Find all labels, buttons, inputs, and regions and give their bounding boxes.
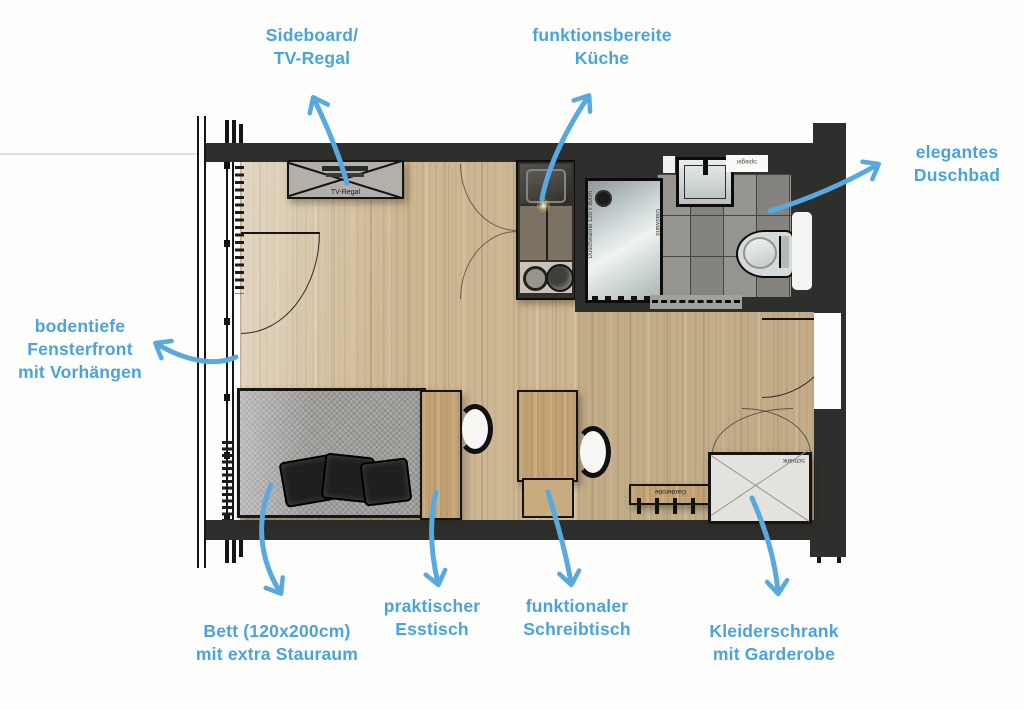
entrance-door-opening — [814, 313, 841, 409]
shower-tray-label: Duschwanne 120 x 80cm — [588, 191, 594, 258]
cooktop — [520, 262, 572, 293]
wall-section-tick — [225, 540, 229, 563]
wall-tick — [837, 557, 841, 563]
annotation-bathroom: elegantes Duschbad — [872, 141, 1024, 187]
kitchen-sink-zone — [520, 164, 572, 204]
window-mullion — [224, 318, 230, 325]
sideboard-tv-shelf: TV-Regal — [287, 160, 404, 199]
shower-head-icon — [595, 190, 612, 207]
kitchenette — [516, 160, 576, 300]
sliding-door-dashes — [652, 300, 740, 303]
dining-table — [420, 390, 462, 520]
wall-section-tick — [239, 124, 243, 143]
window-mullion — [224, 394, 230, 401]
toilet — [736, 230, 794, 278]
annotation-sideboard: Sideboard/ TV-Regal — [227, 24, 397, 70]
shower-tray: Duschwanne 120 x 80cm Glaswand — [585, 178, 663, 303]
coat-rack: Garderobe — [629, 484, 712, 505]
curtain-symbol-bottom — [222, 441, 233, 520]
annotation-wardrobe: Kleiderschrank mit Garderobe — [669, 620, 879, 666]
coat-hook — [673, 498, 677, 514]
sink-basin — [526, 169, 566, 203]
coat-hook — [691, 498, 695, 514]
bathroom-sliding-door — [650, 295, 742, 309]
faucet-icon — [703, 160, 708, 175]
wall-tick — [817, 557, 821, 563]
tv-device — [322, 166, 368, 171]
mirror: Spiegel — [726, 155, 768, 172]
burner-left — [523, 266, 548, 291]
window-outer-line — [197, 116, 199, 568]
desk-drawer-unit — [522, 478, 574, 518]
curtain-symbol-top — [235, 166, 244, 294]
annotation-desk: funktionaler Schreibtisch — [492, 595, 662, 641]
crossed-line — [711, 455, 810, 522]
wall-section-tick — [239, 540, 243, 557]
desk — [517, 390, 578, 482]
coat-hook — [655, 498, 659, 514]
tv-shelf-label: TV-Regal — [289, 189, 402, 196]
wall-section-tick — [232, 540, 236, 563]
desk-chair — [575, 426, 611, 478]
window-mullion — [224, 240, 230, 247]
toilet-bowl — [743, 237, 777, 269]
wardrobe: Schrank — [708, 452, 812, 524]
toilet-tank — [779, 236, 789, 268]
counter-divider — [546, 206, 548, 260]
coat-hook — [637, 498, 641, 514]
bathroom-niche — [792, 212, 812, 290]
top-right-wall-notch — [813, 123, 846, 144]
annotation-window: bodentiefe Fensterfront mit Vorhängen — [0, 315, 165, 384]
shower-ticks — [592, 296, 656, 300]
floor-plan-canvas: TV-Regal Duschwanne 120 x 80cm Glaswand … — [0, 0, 1024, 710]
annotation-kitchen: funktionsbereite Küche — [512, 24, 692, 70]
window-outer-line — [204, 116, 206, 568]
mirror-label: Spiegel — [726, 158, 768, 164]
wall-section-tick — [232, 120, 236, 143]
coat-rack-label: Garderobe — [631, 488, 710, 495]
bottom-right-wall-corner — [810, 520, 846, 557]
drawing-guide-line — [0, 153, 196, 155]
wall-section-tick — [225, 120, 229, 143]
window-mullion — [224, 162, 230, 169]
wardrobe-label: Schrank — [783, 457, 805, 463]
burner-right — [546, 264, 574, 292]
kitchen-counter — [520, 206, 572, 260]
glass-wall-label: Glaswand — [654, 209, 660, 236]
light-sparkle — [537, 199, 550, 212]
dining-chair — [457, 404, 493, 454]
pillow — [359, 457, 412, 507]
bath-shelf — [663, 156, 675, 173]
tv-device — [326, 173, 364, 177]
